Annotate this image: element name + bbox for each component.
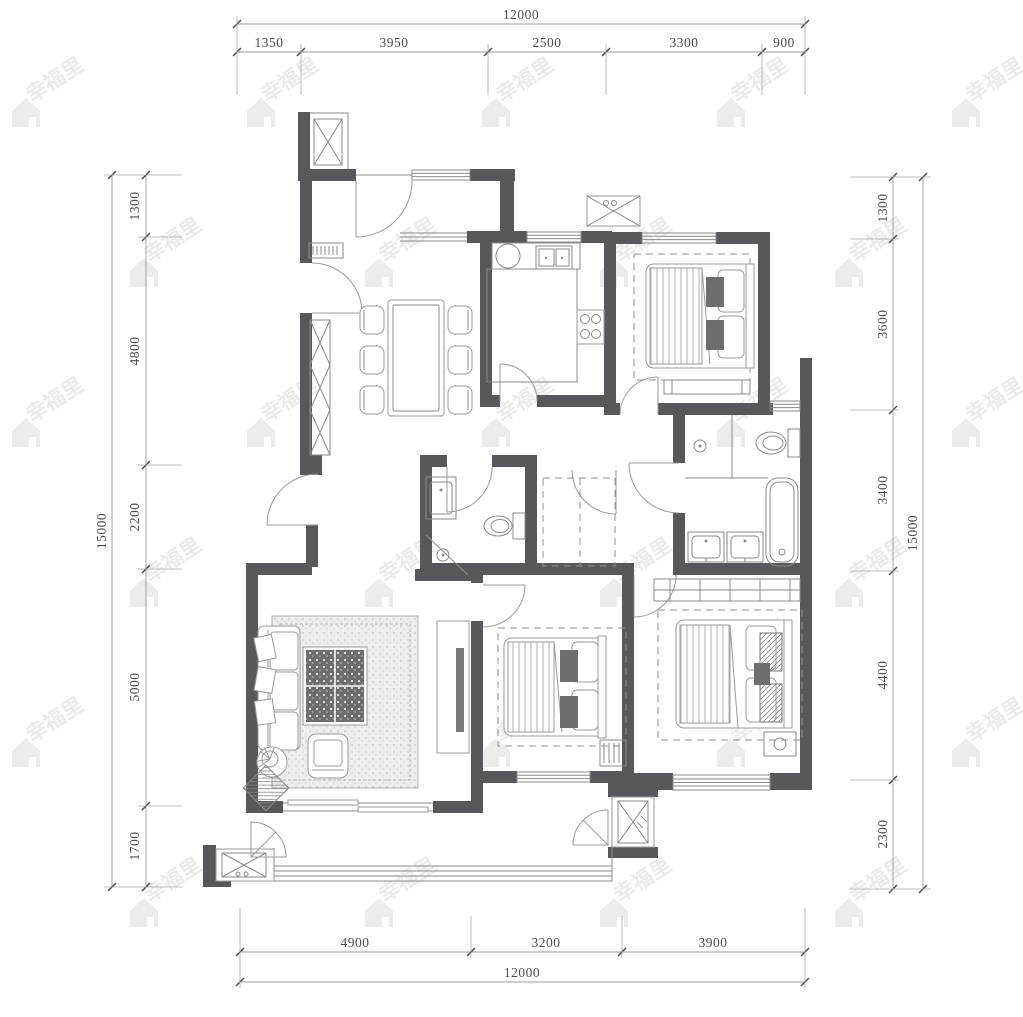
watermark-text: 幸福里 xyxy=(375,853,441,907)
dim-right-seg: 2300 xyxy=(875,820,890,849)
hall-door-arc xyxy=(267,474,318,525)
floor-plan-page: 幸福里幸福里幸福里幸福里幸福里幸福里幸福里幸福里幸福里幸福里幸福里幸福里幸福里幸… xyxy=(0,0,1023,1017)
window xyxy=(527,232,581,242)
kitchen-round-sink xyxy=(496,244,520,268)
radiator xyxy=(309,243,343,258)
shaft-hatch-balcony xyxy=(216,849,274,881)
dim-bottom-seg: 3200 xyxy=(532,935,561,950)
chair xyxy=(360,346,384,374)
armchair xyxy=(308,734,348,778)
coffee-table xyxy=(303,647,367,725)
watermark: 幸福里 xyxy=(365,213,441,287)
kitchen xyxy=(487,243,604,382)
tv-cabinet xyxy=(437,621,469,753)
shaft-door-sector xyxy=(573,810,608,845)
window xyxy=(673,775,770,790)
toilet xyxy=(484,513,525,539)
dining-table xyxy=(388,300,444,416)
dim-left-seg: 1700 xyxy=(127,832,142,861)
watermark-text: 幸福里 xyxy=(962,373,1023,427)
door-arc xyxy=(572,470,616,514)
dimensions-right: 15000 1300 3600 3400 4400 2300 xyxy=(875,194,920,849)
watermark: 幸福里 xyxy=(600,853,676,927)
watermark: 幸福里 xyxy=(835,533,911,607)
watermark: 幸福里 xyxy=(12,373,88,447)
sliding-door xyxy=(283,800,433,812)
dimensions-top: 12000 1350 3950 2500 3300 900 xyxy=(255,7,795,50)
chair xyxy=(448,386,472,414)
dim-right-seg: 1300 xyxy=(875,194,890,223)
dim-bottom-seg: 3900 xyxy=(699,935,728,950)
watermark: 幸福里 xyxy=(130,533,206,607)
dimensions-left: 15000 1300 4800 2200 5000 1700 xyxy=(94,192,142,861)
hallway xyxy=(309,243,343,455)
floor-plan-svg: 幸福里幸福里幸福里幸福里幸福里幸福里幸福里幸福里幸福里幸福里幸福里幸福里幸福里幸… xyxy=(0,0,1023,1017)
watermark: 幸福里 xyxy=(365,853,441,927)
watermark: 幸福里 xyxy=(482,53,558,127)
nightstand xyxy=(764,732,796,756)
sink xyxy=(426,477,456,519)
watermark-text: 幸福里 xyxy=(140,213,206,267)
dimensions-bottom: 4900 3200 3900 12000 xyxy=(341,935,728,980)
watermark: 幸福里 xyxy=(130,853,206,927)
watermark-text: 幸福里 xyxy=(375,213,441,267)
dim-top-seg: 1350 xyxy=(255,35,284,50)
dim-left-seg: 2200 xyxy=(127,503,142,532)
watermark-text: 幸福里 xyxy=(22,53,88,107)
dining-area xyxy=(360,300,472,416)
door-arc xyxy=(620,377,658,415)
watermark: 幸福里 xyxy=(12,53,88,127)
tv xyxy=(456,648,464,732)
window xyxy=(517,772,590,782)
watermark-text: 幸福里 xyxy=(492,53,558,107)
watermark: 幸福里 xyxy=(247,53,323,127)
watermark: 幸福里 xyxy=(717,53,793,127)
watermark-text: 幸福里 xyxy=(140,853,206,907)
watermark-text: 幸福里 xyxy=(845,533,911,587)
watermark: 幸福里 xyxy=(12,693,88,767)
dim-top-seg: 2500 xyxy=(533,35,562,50)
bed xyxy=(676,620,792,728)
dim-left-seg: 5000 xyxy=(127,673,142,702)
dim-right-total: 15000 xyxy=(905,515,920,551)
sofa xyxy=(254,626,300,750)
stove xyxy=(577,310,604,344)
dim-right-seg: 3600 xyxy=(875,310,890,339)
watermark-text: 幸福里 xyxy=(962,693,1023,747)
shaft-hatch-bottom-middle xyxy=(612,797,654,847)
shower-drain xyxy=(694,440,706,452)
dim-right-seg: 4400 xyxy=(875,661,890,690)
watermark-text: 幸福里 xyxy=(22,373,88,427)
door-arc xyxy=(447,467,492,512)
dim-left-total: 15000 xyxy=(94,513,109,549)
bed xyxy=(646,264,754,368)
chair xyxy=(360,386,384,414)
watermark-text: 幸福里 xyxy=(727,53,793,107)
watermark: 幸福里 xyxy=(130,213,206,287)
dim-top-seg: 900 xyxy=(773,35,795,50)
dim-top-seg: 3950 xyxy=(380,35,409,50)
sink xyxy=(727,532,763,562)
watermark-text: 幸福里 xyxy=(140,533,206,587)
dim-top-seg: 3300 xyxy=(670,35,699,50)
watermark: 幸福里 xyxy=(835,853,911,927)
dim-bottom-total: 12000 xyxy=(504,965,540,980)
window xyxy=(356,170,470,180)
watermark-layer: 幸福里幸福里幸福里幸福里幸福里幸福里幸福里幸福里幸福里幸福里幸福里幸福里幸福里幸… xyxy=(12,53,1023,927)
bench xyxy=(664,380,750,394)
sink xyxy=(688,532,724,562)
watermark: 幸福里 xyxy=(835,213,911,287)
dim-top-total: 12000 xyxy=(503,7,539,22)
watermark-text: 幸福里 xyxy=(610,853,676,907)
watermark-text: 幸福里 xyxy=(962,53,1023,107)
watermark: 幸福里 xyxy=(952,693,1023,767)
chair xyxy=(360,306,384,334)
bathtub xyxy=(766,478,798,566)
watermark-text: 幸福里 xyxy=(22,693,88,747)
door-arc xyxy=(629,463,679,513)
balcony-railing xyxy=(274,845,612,881)
chair xyxy=(448,346,472,374)
bedroom-middle xyxy=(498,628,626,766)
watermark: 幸福里 xyxy=(952,373,1023,447)
door-arc xyxy=(483,585,525,627)
dim-left-seg: 1300 xyxy=(127,192,142,221)
toilet xyxy=(756,429,800,457)
living-room xyxy=(243,616,469,811)
bathroom-guest xyxy=(426,477,525,575)
shaft-hatch-top-middle xyxy=(587,196,640,226)
chair xyxy=(448,306,472,334)
door-arc xyxy=(312,263,362,313)
dim-right-seg: 3400 xyxy=(875,476,890,505)
dim-left-seg: 4800 xyxy=(127,337,142,366)
watermark-text: 幸福里 xyxy=(257,373,323,427)
shaft-hatch-top-left xyxy=(310,113,348,169)
kitchen-sink xyxy=(536,246,572,269)
watermark-text: 幸福里 xyxy=(845,853,911,907)
bedroom-top-right xyxy=(634,254,754,394)
watermark: 幸福里 xyxy=(952,53,1023,127)
watermark-text: 幸福里 xyxy=(257,53,323,107)
bed xyxy=(504,636,606,738)
hallway-closet xyxy=(543,478,615,566)
dim-bottom-seg: 4900 xyxy=(341,935,370,950)
watermark: 幸福里 xyxy=(482,373,558,447)
